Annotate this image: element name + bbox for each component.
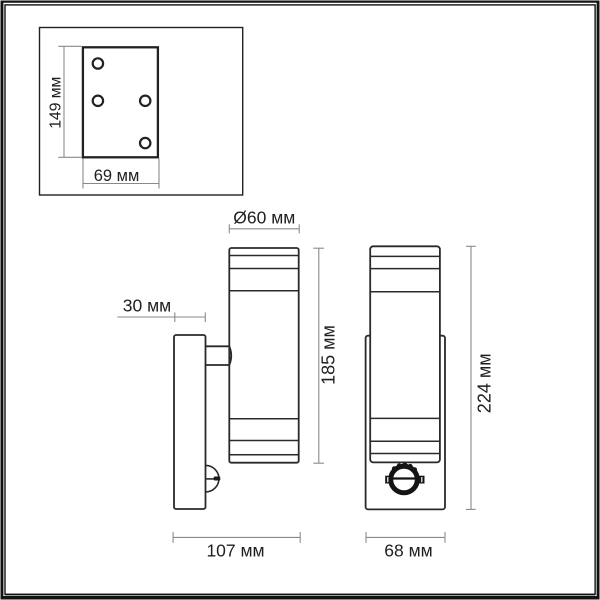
svg-text:68 мм: 68 мм: [384, 541, 432, 561]
svg-text:107 мм: 107 мм: [206, 541, 264, 561]
svg-text:149 мм: 149 мм: [47, 77, 64, 129]
svg-text:224 мм: 224 мм: [475, 353, 495, 413]
svg-text:30 мм: 30 мм: [123, 296, 171, 316]
svg-text:69 мм: 69 мм: [94, 167, 140, 185]
svg-text:185 мм: 185 мм: [319, 325, 339, 385]
svg-text:Ø60 мм: Ø60 мм: [233, 208, 295, 228]
